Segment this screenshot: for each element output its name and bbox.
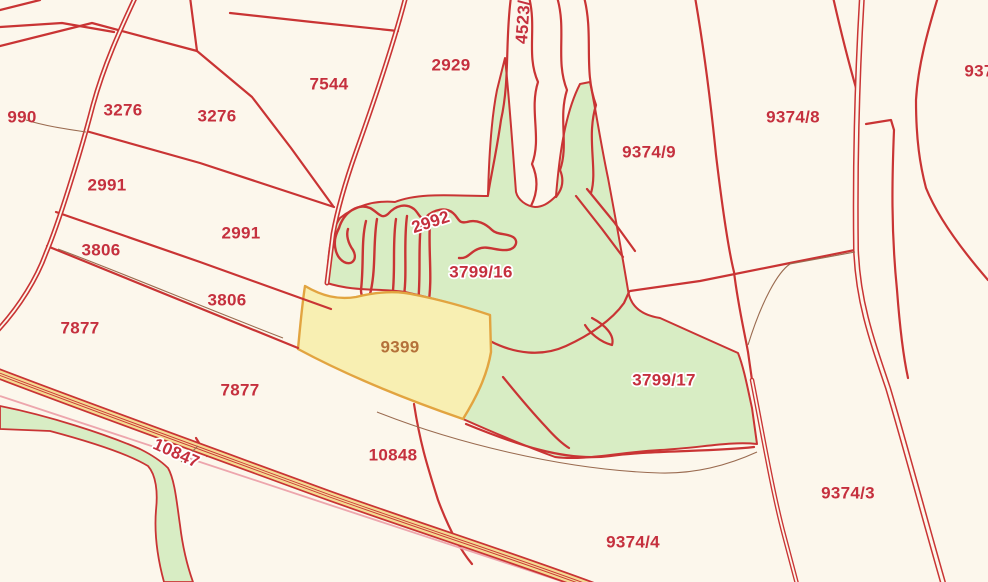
boundary	[230, 13, 398, 31]
cadastral-map[interactable]: 99032763276754429294523/9374/99374/89372…	[0, 0, 988, 582]
boundary-3276-2991	[86, 131, 334, 207]
parcel-label-3806-12: 3806	[207, 290, 246, 309]
parcel-label-7877-13: 7877	[60, 318, 99, 337]
parcel-label-4523-5: 4523/	[512, 0, 534, 45]
parcel-label-93743-22: 9374/3	[821, 483, 875, 502]
parcel-label-10848-20: 10848	[369, 445, 418, 464]
parcel-label-2929-4: 2929	[431, 55, 470, 74]
cadastral-map-viewport[interactable]: 99032763276754429294523/9374/99374/89372…	[0, 0, 988, 582]
parcel-label-3276-1: 3276	[103, 100, 142, 119]
parcel-label-937-8: 937	[964, 61, 988, 80]
parcel-label-93748-7: 9374/8	[766, 107, 820, 126]
parcel-label-379916-16: 3799/16	[449, 262, 513, 281]
boundary-west-curve-core	[0, 0, 136, 330]
parcel-label-93744-21: 9374/4	[606, 532, 660, 551]
boundary	[0, 23, 197, 51]
parcel-label-990-0: 990	[7, 107, 36, 126]
leader-east	[748, 252, 855, 345]
parcel-label-3276-2: 3276	[197, 106, 236, 125]
parcel-label-3806-11: 3806	[81, 240, 120, 259]
boundary-937	[916, 0, 988, 280]
parcel-label-7877-14: 7877	[220, 380, 259, 399]
parcel-label-2991-10: 2991	[221, 223, 260, 242]
boundary-2991-3806	[56, 212, 331, 309]
boundary	[190, 0, 197, 51]
parcel-label-2991-9: 2991	[87, 175, 126, 194]
forest-area-main	[327, 58, 757, 458]
boundary-9374-8-3	[630, 250, 855, 291]
boundary-9374-9-8	[695, 0, 752, 380]
parcel-label-379917-18: 3799/17	[632, 370, 696, 389]
parcel-label-9399-17: 9399	[380, 337, 419, 356]
boundary	[0, 0, 40, 10]
parcel-label-7544-3: 7544	[309, 74, 348, 93]
boundary-west-curve	[0, 0, 136, 330]
boundary	[833, 0, 856, 88]
parcel-label-93749-6: 9374/9	[622, 142, 676, 161]
